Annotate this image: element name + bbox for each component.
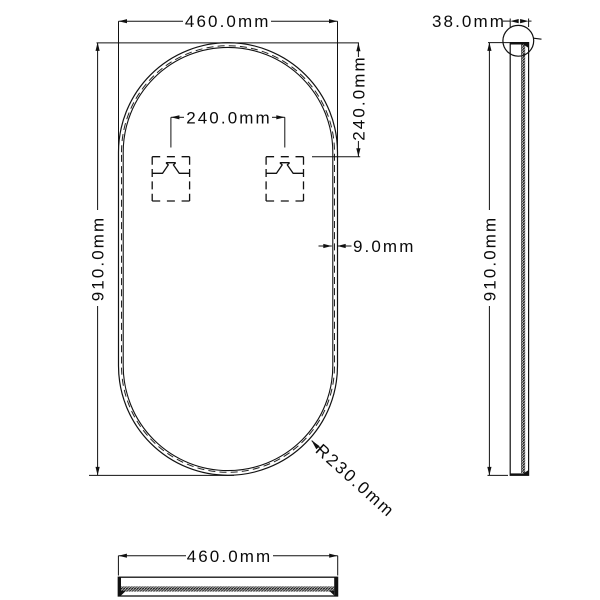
svg-text:910.0mm: 910.0mm	[480, 216, 499, 302]
svg-text:460.0mm: 460.0mm	[187, 547, 273, 566]
svg-text:240.0mm: 240.0mm	[349, 55, 368, 141]
svg-text:460.0mm: 460.0mm	[185, 12, 271, 31]
svg-text:9.0mm: 9.0mm	[353, 237, 415, 256]
svg-text:38.0mm: 38.0mm	[432, 12, 506, 31]
svg-text:R230.0mm: R230.0mm	[312, 440, 399, 521]
svg-text:240.0mm: 240.0mm	[186, 109, 272, 128]
svg-text:910.0mm: 910.0mm	[89, 216, 108, 302]
